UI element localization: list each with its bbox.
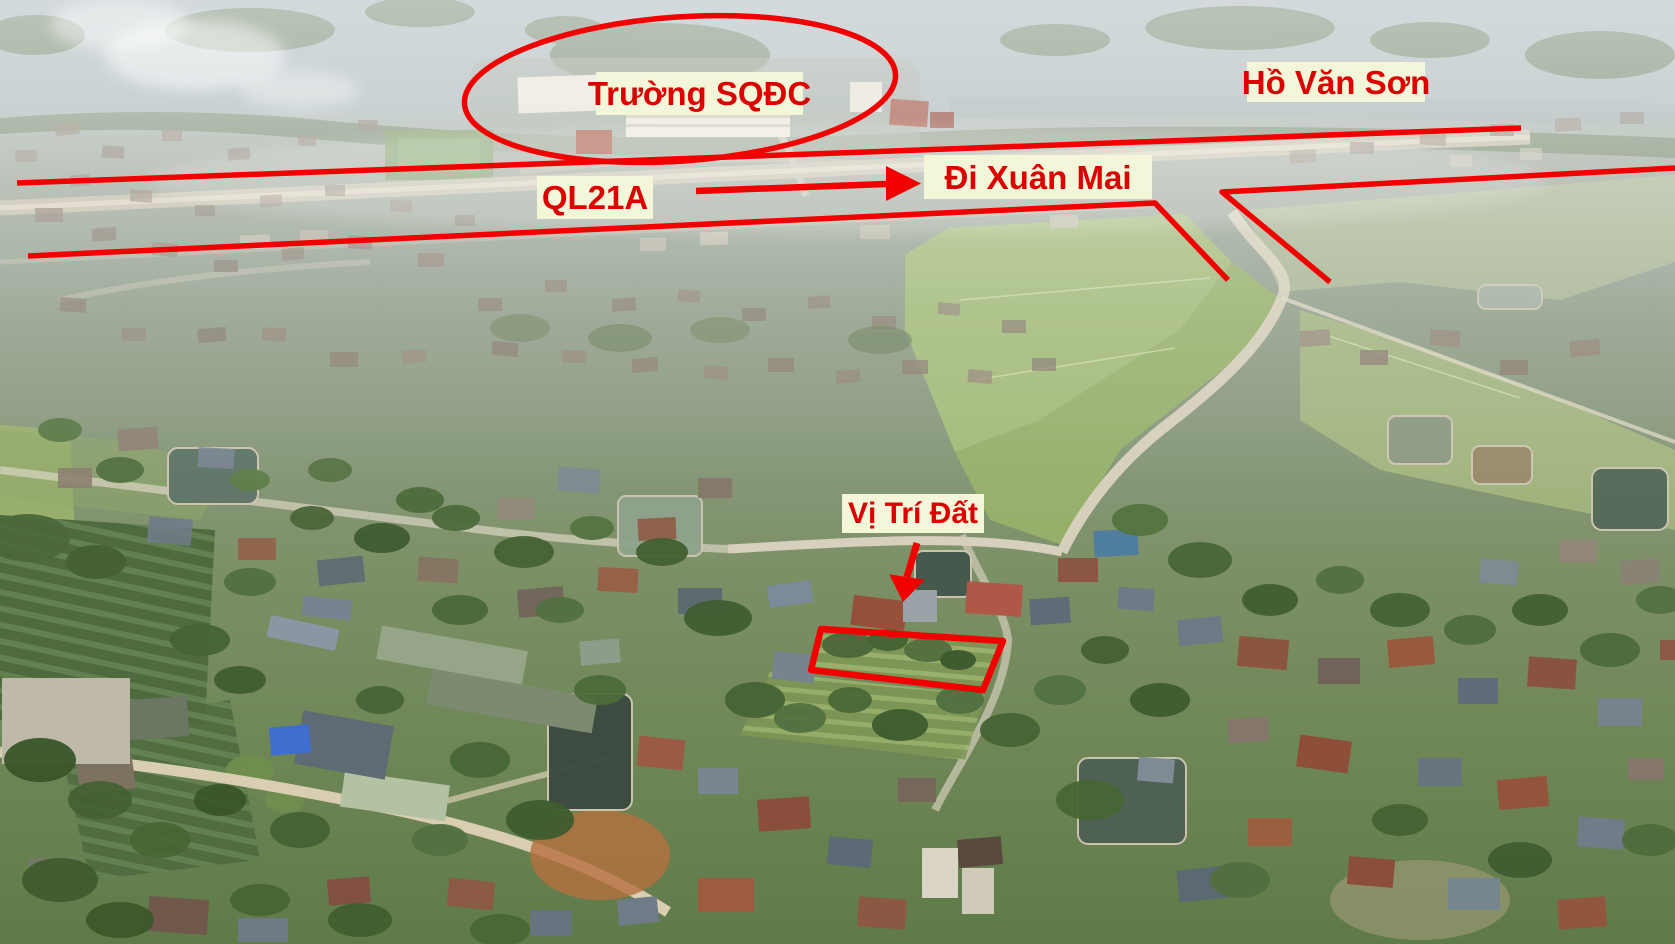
direction-arrow-shaft <box>696 184 886 191</box>
road-line-top <box>17 128 1521 183</box>
label-ho-van-son: Hồ Văn Sơn <box>1247 62 1425 102</box>
direction-arrow-head-icon <box>886 166 921 201</box>
annotation-overlay <box>0 0 1675 944</box>
plot-arrow-shaft <box>907 543 917 577</box>
label-vi-tri-dat: Vị Trí Đất <box>842 494 984 533</box>
label-ql21a: QL21A <box>537 176 653 219</box>
label-di-xuan-mai: Đi Xuân Mai <box>924 155 1152 199</box>
annotated-aerial-photo: Trường SQĐC Hồ Văn Sơn QL21A Đi Xuân Mai… <box>0 0 1675 944</box>
plot-arrow-head-icon <box>889 574 925 602</box>
plot-boundary <box>811 629 1003 690</box>
branch-road-line <box>1222 168 1675 282</box>
label-truong-sqdc: Trường SQĐC <box>596 72 803 115</box>
